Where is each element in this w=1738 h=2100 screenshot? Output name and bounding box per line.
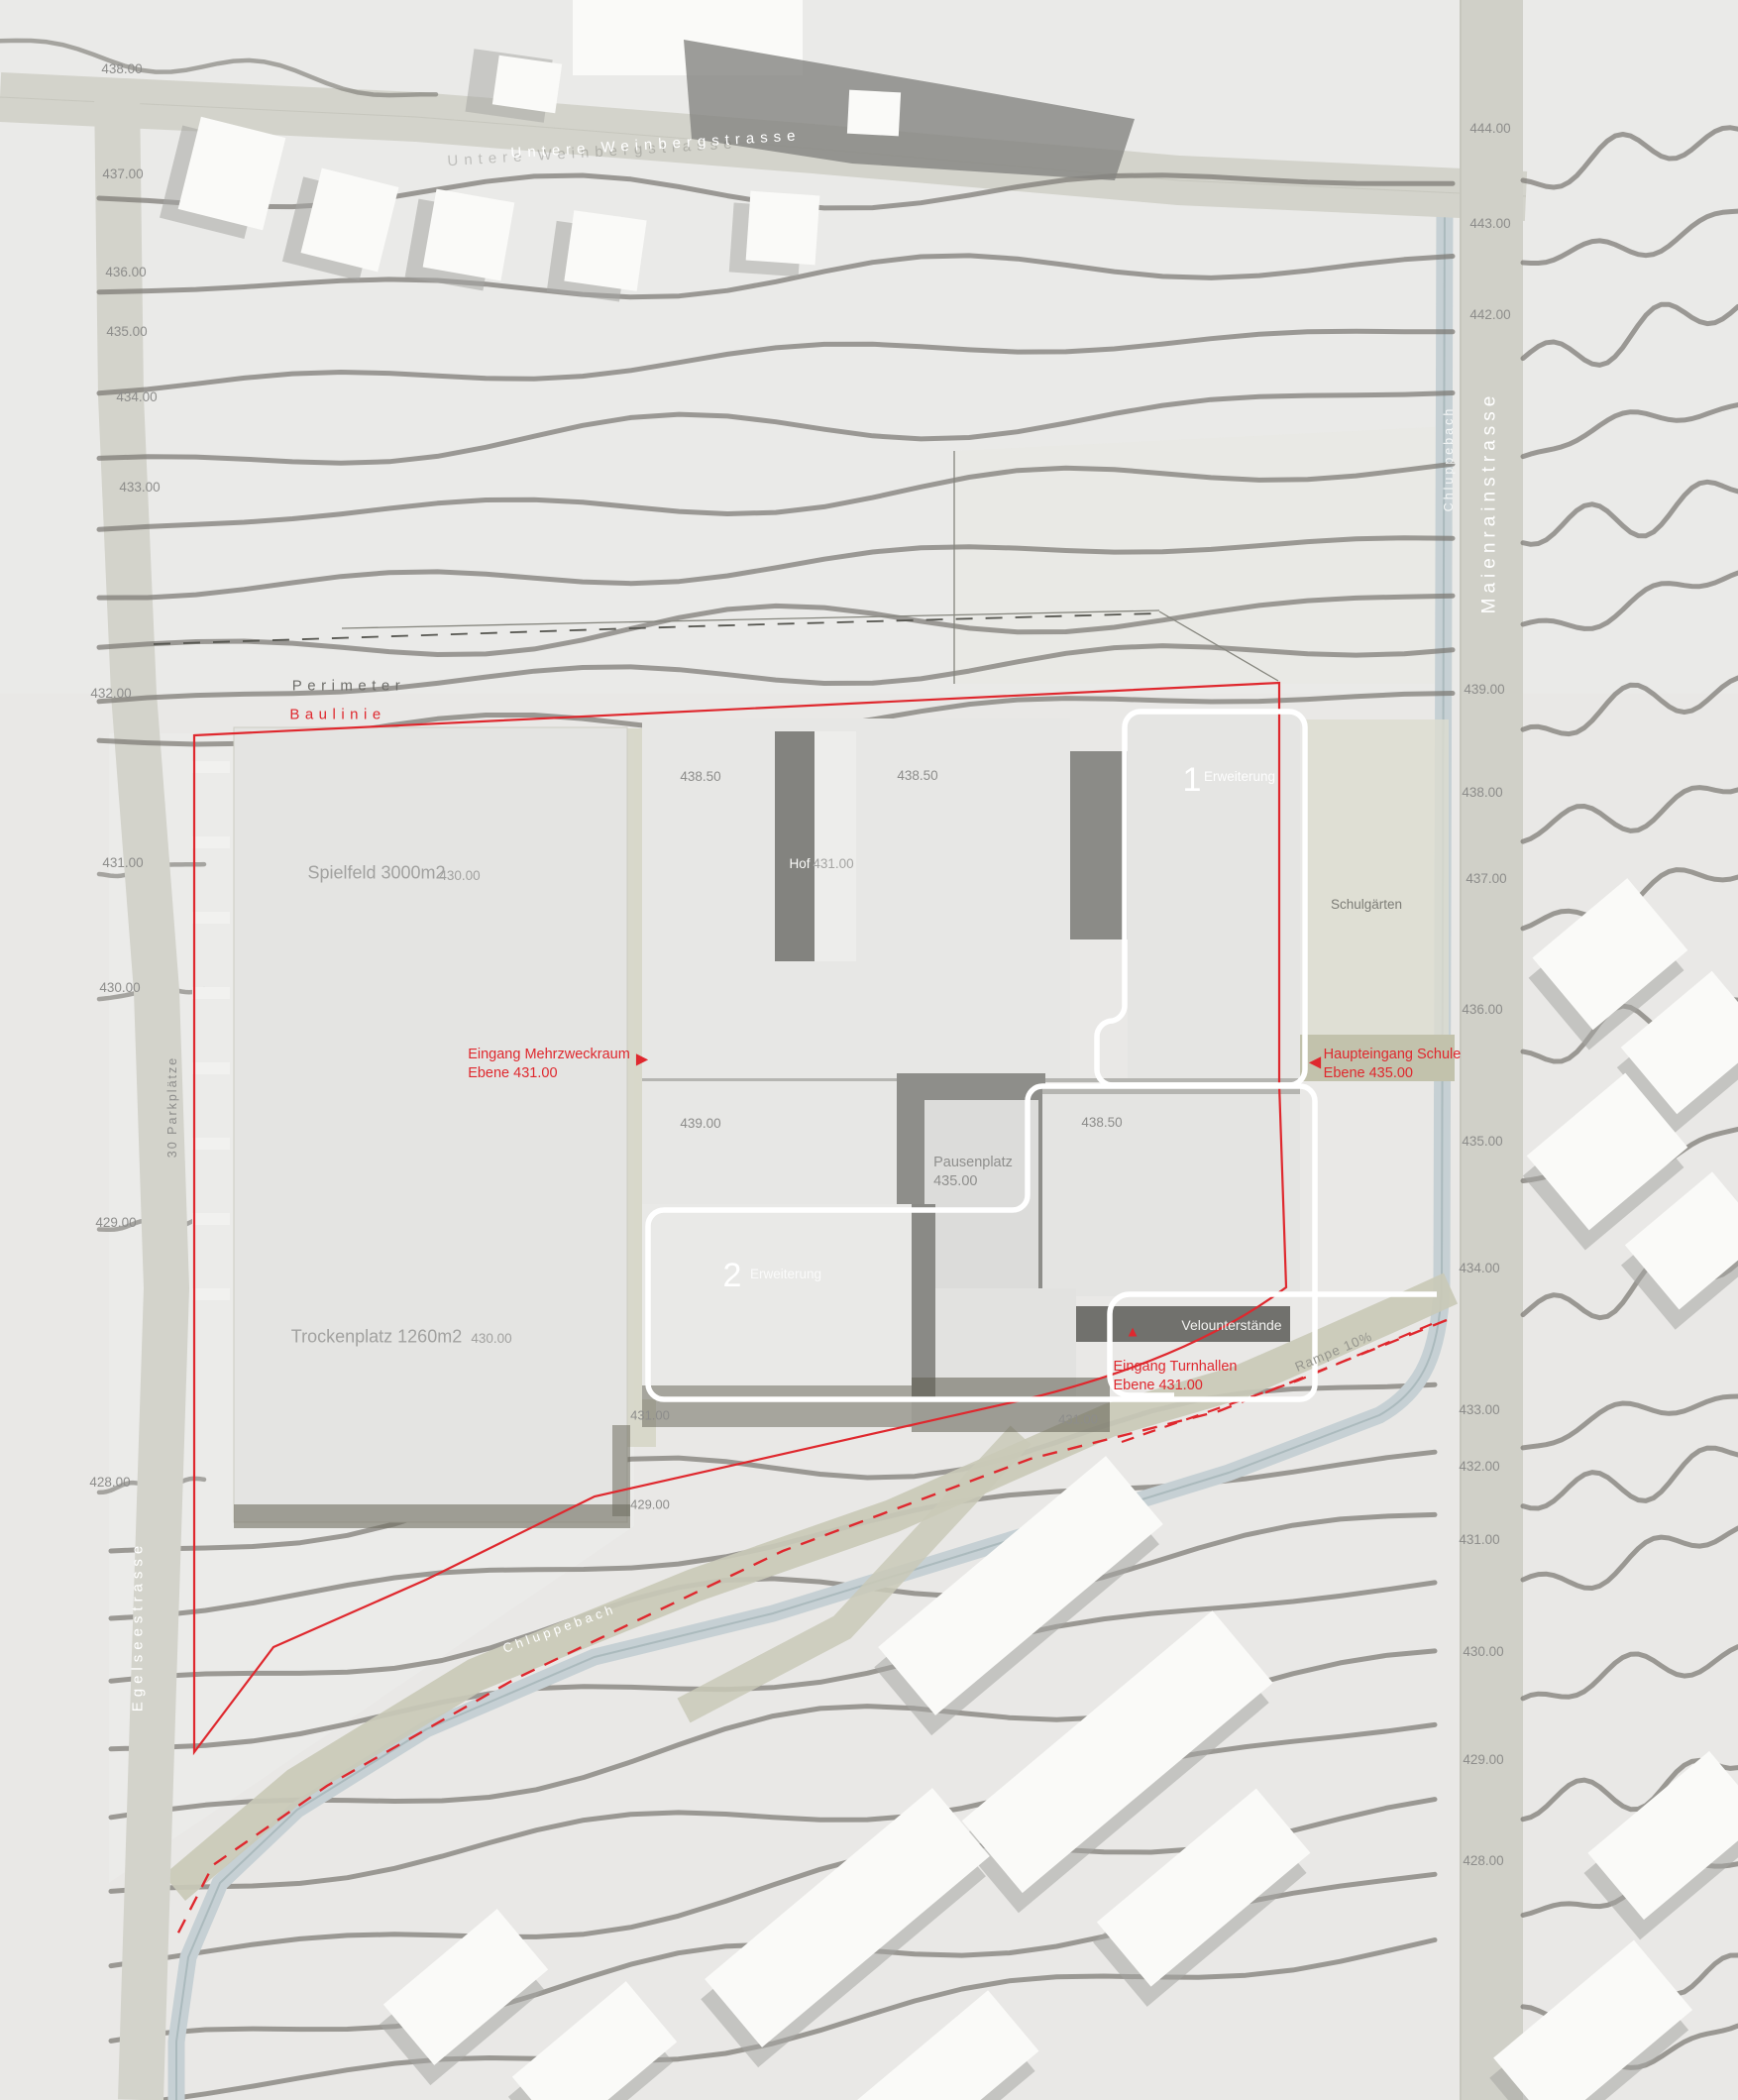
label-layer: Untere WeinbergstrasseUntere Weinbergstr… (0, 0, 1738, 2100)
hof-elevation: 431.00 (813, 855, 853, 873)
elev-left-433: 433.00 (119, 479, 160, 497)
water-chluppebach-stream: Chluppebach (500, 1601, 618, 1657)
roof-439-elevation: 439.00 (680, 1115, 720, 1133)
erweiterung2-label: Erweiterung (750, 1266, 821, 1283)
site-plan-model-photo: Untere WeinbergstrasseUntere Weinbergstr… (0, 0, 1738, 2100)
elev-left-428: 428.00 (89, 1474, 130, 1492)
elev-left-434: 434.00 (116, 388, 157, 406)
spielfeld-elevation: 430.00 (439, 867, 480, 885)
elev-left-437: 437.00 (102, 166, 143, 183)
elev-right-432: 432.00 (1459, 1458, 1499, 1476)
eingang-turnhallen-arrow: ▲ (1126, 1322, 1141, 1342)
perimeter-label: Perimeter (292, 676, 406, 696)
elev-right-433: 433.00 (1459, 1401, 1499, 1419)
ramp-label: Rampe 10% (1292, 1328, 1375, 1377)
elev-right-439: 439.00 (1464, 681, 1504, 699)
elev-right-436: 436.00 (1462, 1001, 1502, 1019)
baulinie-label: Baulinie (289, 705, 385, 724)
elev-right-430: 430.00 (1463, 1643, 1503, 1661)
elev-left-431: 431.00 (102, 854, 143, 872)
eingang-turnhallen-label: Eingang Turnhallen Ebene 431.00 (1114, 1358, 1238, 1395)
elev-right-431: 431.00 (1459, 1531, 1499, 1549)
roof-northeast-elevation: 438.50 (897, 767, 937, 785)
elev-right-443: 443.00 (1469, 215, 1510, 233)
parking-count-label: 30 Parkplätze (164, 1056, 180, 1158)
elev-right-429: 429.00 (1463, 1751, 1503, 1769)
erweiterung1-number: 1 (1183, 758, 1202, 802)
elev-right-442: 442.00 (1469, 306, 1510, 324)
elev-left-436: 436.00 (105, 264, 146, 281)
roof-northwest-elevation: 438.50 (680, 768, 720, 786)
eingang-mehrzweckraum-label: Eingang Mehrzweckraum Ebene 431.00 (468, 1046, 630, 1083)
elev-left-435: 435.00 (106, 323, 147, 341)
water-chluppebach-upper: Chluppebach (1441, 406, 1457, 512)
elev-right-438: 438.00 (1462, 784, 1502, 802)
street-egelseestrasse: Egelseestrasse (128, 1541, 148, 1713)
elev-left-432: 432.00 (90, 685, 131, 703)
hof-label: Hof (789, 855, 810, 873)
elev-left-429: 429.00 (95, 1214, 136, 1232)
elev-left-430: 430.00 (99, 979, 140, 997)
terrace-431-elevation: 431.00 (630, 1408, 670, 1425)
path-431-elevation: 431.00 (1058, 1412, 1098, 1429)
elev-right-434: 434.00 (1459, 1260, 1499, 1277)
roof-south-elevation: 438.50 (1081, 1114, 1122, 1132)
haupteingang-schule-arrow: ◀ (1309, 1053, 1321, 1074)
spielfeld-label: Spielfeld 3000m2 (307, 861, 445, 884)
trockenplatz-label: Trockenplatz 1260m2 (291, 1325, 462, 1348)
haupteingang-schule-label: Haupteingang Schule Ebene 435.00 (1324, 1046, 1462, 1083)
elev-right-428: 428.00 (1463, 1852, 1503, 1870)
velounterstaende-label: Velounterstände (1181, 1316, 1281, 1334)
street-maienrainstrasse: Maienrainstrasse (1478, 391, 1503, 614)
elev-left-438: 438.00 (101, 60, 142, 78)
terrace-429-elevation: 429.00 (630, 1497, 670, 1514)
erweiterung2-number: 2 (723, 1254, 742, 1297)
elev-right-437: 437.00 (1466, 870, 1506, 888)
schulgaerten-label: Schulgärten (1331, 896, 1402, 914)
trockenplatz-elevation: 430.00 (471, 1330, 511, 1348)
elev-right-435: 435.00 (1462, 1133, 1502, 1151)
eingang-mehrzweckraum-arrow: ▶ (636, 1050, 648, 1071)
pausenplatz-label: Pausenplatz 435.00 (933, 1154, 1013, 1191)
elev-right-444: 444.00 (1469, 120, 1510, 138)
erweiterung1-label: Erweiterung (1204, 768, 1275, 786)
